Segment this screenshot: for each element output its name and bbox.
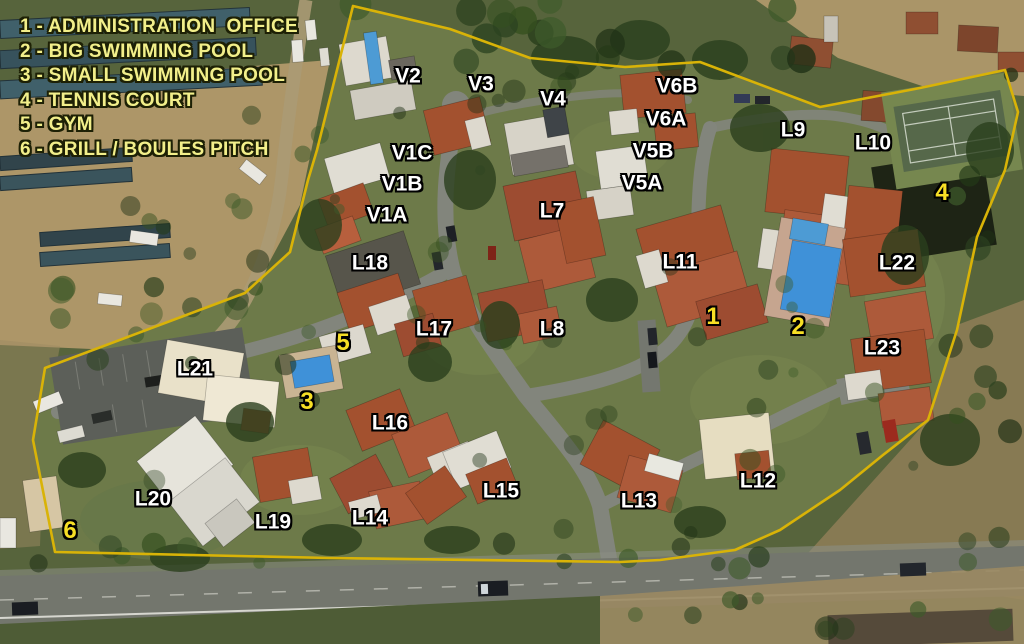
legend-item-4: 4 - TENNIS COURT bbox=[20, 89, 298, 114]
legend-item-2: 2 - BIG SWIMMING POOL bbox=[20, 40, 298, 65]
legend-item-1: 1 - ADMINISTRATION OFFICE bbox=[20, 15, 298, 40]
legend-item-3: 3 - SMALL SWIMMING POOL bbox=[20, 64, 298, 89]
legend-item-6: 6 - GRILL / BOULES PITCH bbox=[20, 138, 298, 163]
aerial-map-screenshot: V2V3V4V6BV6AV5BV5AV1CV1BV1AL7L8L9L10L11L… bbox=[0, 0, 1024, 644]
legend: 1 - ADMINISTRATION OFFICE2 - BIG SWIMMIN… bbox=[20, 15, 298, 162]
legend-item-5: 5 - GYM bbox=[20, 113, 298, 138]
